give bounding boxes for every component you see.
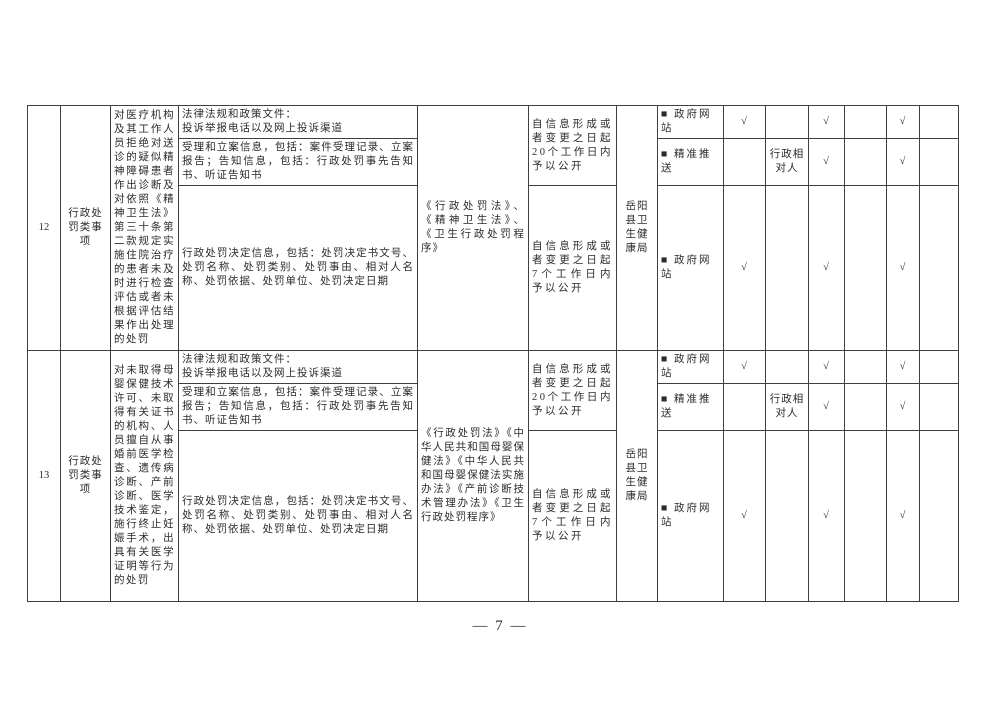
row-number-cell: 12 xyxy=(28,106,61,351)
check-cell: √ xyxy=(809,351,845,384)
disclosure-timing-cell: 自信息形成或者变更之日起7个工作日内予以公开 xyxy=(529,431,617,602)
check-cell xyxy=(766,186,809,351)
check-cell: √ xyxy=(809,106,845,139)
check-cell xyxy=(845,384,887,431)
check-cell xyxy=(845,139,887,186)
check-cell: √ xyxy=(887,186,920,351)
item-description-cell: 对医疗机构及其工作人员拒绝对送诊的疑似精神障碍患者作出诊断及对依照《精神卫生法》… xyxy=(111,106,179,351)
check-cell xyxy=(845,351,887,384)
agency-cell: 岳阳县卫生健康局 xyxy=(617,351,658,602)
check-cell xyxy=(920,351,959,384)
info-content-cell: 行政处罚决定信息，包括：处罚决定书文号、处罚名称、处罚类别、处罚事由、相对人名称… xyxy=(179,431,418,602)
check-cell: 行政相对人 xyxy=(766,384,809,431)
channel-cell: ■ 政府网站 xyxy=(658,351,724,384)
category-cell: 行政处罚类事项 xyxy=(61,106,111,351)
check-cell xyxy=(920,431,959,602)
check-cell: √ xyxy=(887,431,920,602)
check-cell xyxy=(845,186,887,351)
check-cell: 行政相对人 xyxy=(766,139,809,186)
check-cell xyxy=(845,431,887,602)
check-cell: √ xyxy=(809,139,845,186)
page-number: — 7 — xyxy=(0,618,1000,635)
channel-cell: ■ 政府网站 xyxy=(658,186,724,351)
check-cell xyxy=(766,351,809,384)
item-description-cell: 对未取得母婴保健技术许可、未取得有关证书的机构、人员擅自从事婚前医学检查、遗传病… xyxy=(111,351,179,602)
check-cell: √ xyxy=(809,186,845,351)
check-cell: √ xyxy=(887,106,920,139)
channel-cell: ■ 精准推送 xyxy=(658,139,724,186)
disclosure-timing-cell: 自信息形成或者变更之日起20个工作日内予以公开 xyxy=(529,351,617,431)
table-row: 13 行政处罚类事项 对未取得母婴保健技术许可、未取得有关证书的机构、人员擅自从… xyxy=(28,351,959,384)
table-row: 12 行政处罚类事项 对医疗机构及其工作人员拒绝对送诊的疑似精神障碍患者作出诊断… xyxy=(28,106,959,139)
check-cell: √ xyxy=(887,384,920,431)
category-cell: 行政处罚类事项 xyxy=(61,351,111,602)
check-cell xyxy=(845,106,887,139)
info-content-cell: 法律法规和政策文件： 投诉举报电话以及网上投诉渠道 xyxy=(179,106,418,139)
check-cell: √ xyxy=(724,106,766,139)
check-cell xyxy=(766,106,809,139)
info-content-cell: 受理和立案信息，包括：案件受理记录、立案报告；告知信息，包括：行政处罚事先告知书… xyxy=(179,139,418,186)
legal-basis-cell: 《行政处罚法》《中华人民共和国母婴保健法》《中华人民共和国母婴保健法实施办法》《… xyxy=(418,351,529,602)
check-cell xyxy=(766,431,809,602)
disclosure-items-table: 12 行政处罚类事项 对医疗机构及其工作人员拒绝对送诊的疑似精神障碍患者作出诊断… xyxy=(27,105,959,602)
check-cell: √ xyxy=(887,351,920,384)
legal-basis-cell: 《行政处罚法》、《精神卫生法》、《卫生行政处罚程序》 xyxy=(418,106,529,351)
info-content-cell: 受理和立案信息，包括：案件受理记录、立案报告；告知信息，包括：行政处罚事先告知书… xyxy=(179,384,418,431)
check-cell xyxy=(920,106,959,139)
row-number-cell: 13 xyxy=(28,351,61,602)
channel-cell: ■ 政府网站 xyxy=(658,431,724,602)
check-cell xyxy=(724,384,766,431)
check-cell: √ xyxy=(724,431,766,602)
check-cell: √ xyxy=(809,384,845,431)
document-page: 12 行政处罚类事项 对医疗机构及其工作人员拒绝对送诊的疑似精神障碍患者作出诊断… xyxy=(0,0,1000,706)
info-content-cell: 法律法规和政策文件： 投诉举报电话以及网上投诉渠道 xyxy=(179,351,418,384)
check-cell: √ xyxy=(724,351,766,384)
check-cell xyxy=(920,139,959,186)
info-content-cell: 行政处罚决定信息，包括：处罚决定书文号、处罚名称、处罚类别、处罚事由、相对人名称… xyxy=(179,186,418,351)
disclosure-timing-cell: 自信息形成或者变更之日起7个工作日内予以公开 xyxy=(529,186,617,351)
check-cell: √ xyxy=(887,139,920,186)
check-cell xyxy=(920,384,959,431)
disclosure-timing-cell: 自信息形成或者变更之日起20个工作日内予以公开 xyxy=(529,106,617,186)
check-cell xyxy=(724,139,766,186)
check-cell: √ xyxy=(724,186,766,351)
check-cell: √ xyxy=(809,431,845,602)
check-cell xyxy=(920,186,959,351)
channel-cell: ■ 政府网站 xyxy=(658,106,724,139)
channel-cell: ■ 精准推送 xyxy=(658,384,724,431)
agency-cell: 岳阳县卫生健康局 xyxy=(617,106,658,351)
